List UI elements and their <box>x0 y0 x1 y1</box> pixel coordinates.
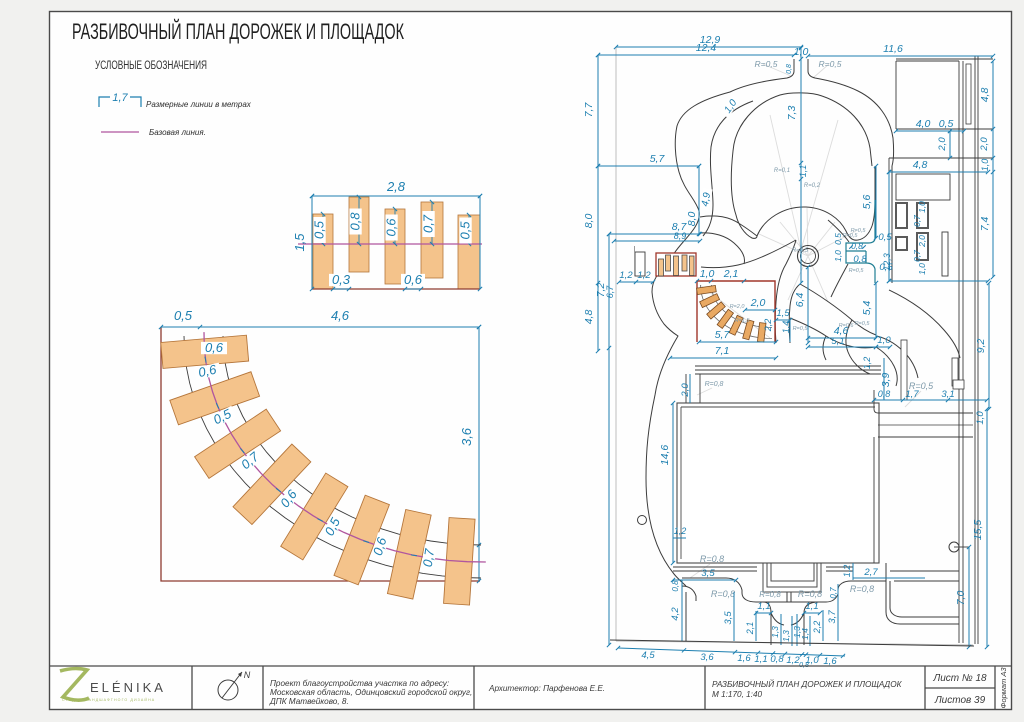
svg-text:R=0,8: R=0,8 <box>705 381 724 388</box>
svg-text:R=0,5: R=0,5 <box>849 268 865 274</box>
svg-text:7,1: 7,1 <box>715 345 730 357</box>
svg-text:0,6: 0,6 <box>205 340 224 355</box>
svg-text:4,5: 4,5 <box>641 650 655 661</box>
svg-text:R=2,0: R=2,0 <box>730 304 746 310</box>
svg-text:М 1:170, 1:40: М 1:170, 1:40 <box>712 690 763 699</box>
svg-text:1,0: 1,0 <box>917 201 927 213</box>
svg-text:Листов 39: Листов 39 <box>934 695 986 706</box>
svg-text:1,0: 1,0 <box>877 335 891 346</box>
svg-text:5,1: 5,1 <box>831 336 844 347</box>
svg-text:4,6: 4,6 <box>331 308 350 323</box>
svg-text:3,5: 3,5 <box>701 568 715 579</box>
svg-text:1,7: 1,7 <box>112 92 128 104</box>
svg-text:12,3: 12,3 <box>882 253 892 271</box>
svg-text:0,8: 0,8 <box>348 212 363 231</box>
svg-text:2,0: 2,0 <box>750 297 766 309</box>
svg-text:2,2: 2,2 <box>812 621 822 635</box>
svg-text:0,8: 0,8 <box>786 64 793 74</box>
svg-text:1,0: 1,0 <box>980 159 990 172</box>
svg-text:12,4: 12,4 <box>696 42 717 54</box>
svg-text:1,1: 1,1 <box>757 601 770 612</box>
svg-text:Архитектор: Парфенова Е.Е.: Архитектор: Парфенова Е.Е. <box>488 684 605 693</box>
svg-text:R=0,2: R=0,2 <box>804 183 821 189</box>
svg-text:2,0: 2,0 <box>937 137 948 152</box>
svg-text:6,7: 6,7 <box>605 285 615 299</box>
svg-text:2,1: 2,1 <box>723 268 739 280</box>
svg-text:R=0,6: R=0,6 <box>839 323 855 329</box>
svg-text:1,5: 1,5 <box>292 233 307 252</box>
svg-text:РАЗБИВОЧНЫЙ ПЛАН ДОРОЖЕК И ПЛО: РАЗБИВОЧНЫЙ ПЛАН ДОРОЖЕК И ПЛОЩАДОК <box>72 19 404 44</box>
svg-text:1,6: 1,6 <box>737 653 751 664</box>
svg-text:3,5: 3,5 <box>723 611 734 625</box>
svg-text:1,3: 1,3 <box>781 630 791 642</box>
svg-text:РАЗБИВОЧНЫЙ ПЛАН ДОРОЖЕК И ПЛО: РАЗБИВОЧНЫЙ ПЛАН ДОРОЖЕК И ПЛОЩАДОК <box>712 678 903 689</box>
svg-text:R=0,5: R=0,5 <box>843 233 859 239</box>
svg-text:Лист № 18: Лист № 18 <box>932 673 987 684</box>
svg-text:R=0,5: R=0,5 <box>819 59 842 69</box>
svg-text:5,7: 5,7 <box>715 329 731 341</box>
svg-text:1,1: 1,1 <box>798 165 808 178</box>
svg-text:2,0: 2,0 <box>680 383 691 398</box>
svg-text:СТУДИЯ ЛАНДШАФТНОГО ДИЗАЙНА: СТУДИЯ ЛАНДШАФТНОГО ДИЗАЙНА <box>62 698 155 702</box>
svg-text:3,6: 3,6 <box>459 427 474 446</box>
svg-text:R=0,8: R=0,8 <box>759 590 781 599</box>
svg-text:N: N <box>244 670 251 680</box>
svg-text:3,7: 3,7 <box>827 610 838 624</box>
svg-text:4,8: 4,8 <box>583 310 595 325</box>
svg-text:2,2: 2,2 <box>763 319 773 333</box>
svg-text:1,3: 1,3 <box>770 626 780 638</box>
svg-text:Проект благоустройства участка: Проект благоустройства участка по адресу… <box>270 679 449 688</box>
svg-text:1,5: 1,5 <box>776 308 790 319</box>
svg-text:0,7: 0,7 <box>829 587 838 599</box>
svg-text:4,2: 4,2 <box>670 607 681 621</box>
svg-text:ELÉNIKA: ELÉNIKA <box>90 680 166 695</box>
svg-text:R=0,8: R=0,8 <box>711 589 735 599</box>
svg-text:7,7: 7,7 <box>583 102 595 118</box>
svg-text:4,8: 4,8 <box>913 159 928 171</box>
svg-text:7,4: 7,4 <box>979 217 991 232</box>
svg-text:0,5: 0,5 <box>833 233 843 245</box>
svg-text:R=1,5: R=1,5 <box>735 318 751 324</box>
svg-text:1,0: 1,0 <box>805 655 819 666</box>
svg-text:0,5: 0,5 <box>312 220 327 239</box>
svg-text:0,7: 0,7 <box>420 547 438 568</box>
svg-text:R=0,5: R=0,5 <box>792 248 809 254</box>
svg-text:4,0: 4,0 <box>916 118 931 130</box>
svg-text:7,0: 7,0 <box>955 591 967 606</box>
svg-text:1,0: 1,0 <box>917 263 927 275</box>
svg-text:R=0,5: R=0,5 <box>793 326 809 332</box>
svg-text:0,3: 0,3 <box>332 272 351 287</box>
svg-text:3,1: 3,1 <box>941 389 954 400</box>
svg-text:Размерные линии в метрах: Размерные линии в метрах <box>146 100 252 109</box>
svg-text:Базовая линия.: Базовая линия. <box>149 128 206 137</box>
svg-text:0,6: 0,6 <box>384 218 399 237</box>
svg-text:2,0: 2,0 <box>979 137 990 152</box>
svg-text:1,2: 1,2 <box>619 270 633 281</box>
svg-text:6,4: 6,4 <box>794 293 806 308</box>
svg-text:1,2: 1,2 <box>862 357 872 370</box>
svg-text:R=0,5: R=0,5 <box>755 59 778 69</box>
svg-text:R=0,1: R=0,1 <box>774 168 790 174</box>
svg-text:Московская область, Одинцовски: Московская область, Одинцовский городско… <box>270 688 472 697</box>
svg-text:0,5: 0,5 <box>174 308 193 323</box>
svg-text:1,4: 1,4 <box>781 321 791 334</box>
svg-text:2,0: 2,0 <box>917 235 927 248</box>
svg-text:8,9: 8,9 <box>674 231 687 241</box>
svg-text:0,8: 0,8 <box>851 241 863 251</box>
svg-text:0,7: 0,7 <box>421 214 436 233</box>
svg-text:1,2: 1,2 <box>842 565 852 578</box>
svg-text:Формат А3: Формат А3 <box>999 667 1008 709</box>
svg-text:2,7: 2,7 <box>863 567 878 578</box>
svg-text:0,6: 0,6 <box>404 272 423 287</box>
svg-text:1,0: 1,0 <box>833 250 843 262</box>
svg-text:14,6: 14,6 <box>659 445 671 466</box>
svg-text:0,5: 0,5 <box>458 221 473 240</box>
svg-text:0,7: 0,7 <box>912 250 922 262</box>
svg-text:9,2: 9,2 <box>975 339 987 354</box>
svg-text:R=0,8: R=0,8 <box>700 554 724 564</box>
svg-text:0,5: 0,5 <box>878 232 892 243</box>
svg-text:5,6: 5,6 <box>861 195 873 210</box>
svg-text:8,0: 8,0 <box>583 214 595 229</box>
svg-text:11,6: 11,6 <box>883 43 903 55</box>
svg-text:7,3: 7,3 <box>786 106 798 121</box>
svg-text:0,8: 0,8 <box>671 580 680 592</box>
svg-text:ДПК Матвейково, 8.: ДПК Матвейково, 8. <box>269 697 349 706</box>
svg-text:R=0,8: R=0,8 <box>798 589 822 599</box>
svg-text:0,8: 0,8 <box>770 654 784 665</box>
svg-text:1,1: 1,1 <box>805 601 818 612</box>
svg-text:1,2: 1,2 <box>637 270 651 281</box>
svg-text:15,5: 15,5 <box>972 520 984 541</box>
svg-text:4,8: 4,8 <box>979 88 991 103</box>
svg-text:0,5: 0,5 <box>939 118 954 130</box>
svg-text:R=0,8: R=0,8 <box>850 584 874 594</box>
svg-text:5,4: 5,4 <box>861 301 873 316</box>
svg-text:3,9: 3,9 <box>880 373 892 388</box>
svg-text:5,7: 5,7 <box>650 153 666 165</box>
svg-text:1,0: 1,0 <box>975 411 986 425</box>
svg-text:0,7: 0,7 <box>912 215 922 227</box>
svg-text:УСЛОВНЫЕ ОБОЗНАЧЕНИЯ: УСЛОВНЫЕ ОБОЗНАЧЕНИЯ <box>95 60 207 72</box>
svg-text:1,7: 1,7 <box>905 389 919 400</box>
svg-text:2,1: 2,1 <box>745 622 755 636</box>
svg-text:1,1: 1,1 <box>754 654 767 665</box>
svg-text:3,6: 3,6 <box>700 652 714 663</box>
svg-text:2,8: 2,8 <box>386 179 406 194</box>
svg-text:0,8: 0,8 <box>853 254 867 265</box>
svg-text:R=0,5: R=0,5 <box>855 321 871 327</box>
svg-text:1,0: 1,0 <box>700 268 715 280</box>
svg-text:1,4: 1,4 <box>800 628 810 640</box>
svg-text:8,0: 8,0 <box>686 212 698 227</box>
svg-text:1,2: 1,2 <box>674 526 687 536</box>
